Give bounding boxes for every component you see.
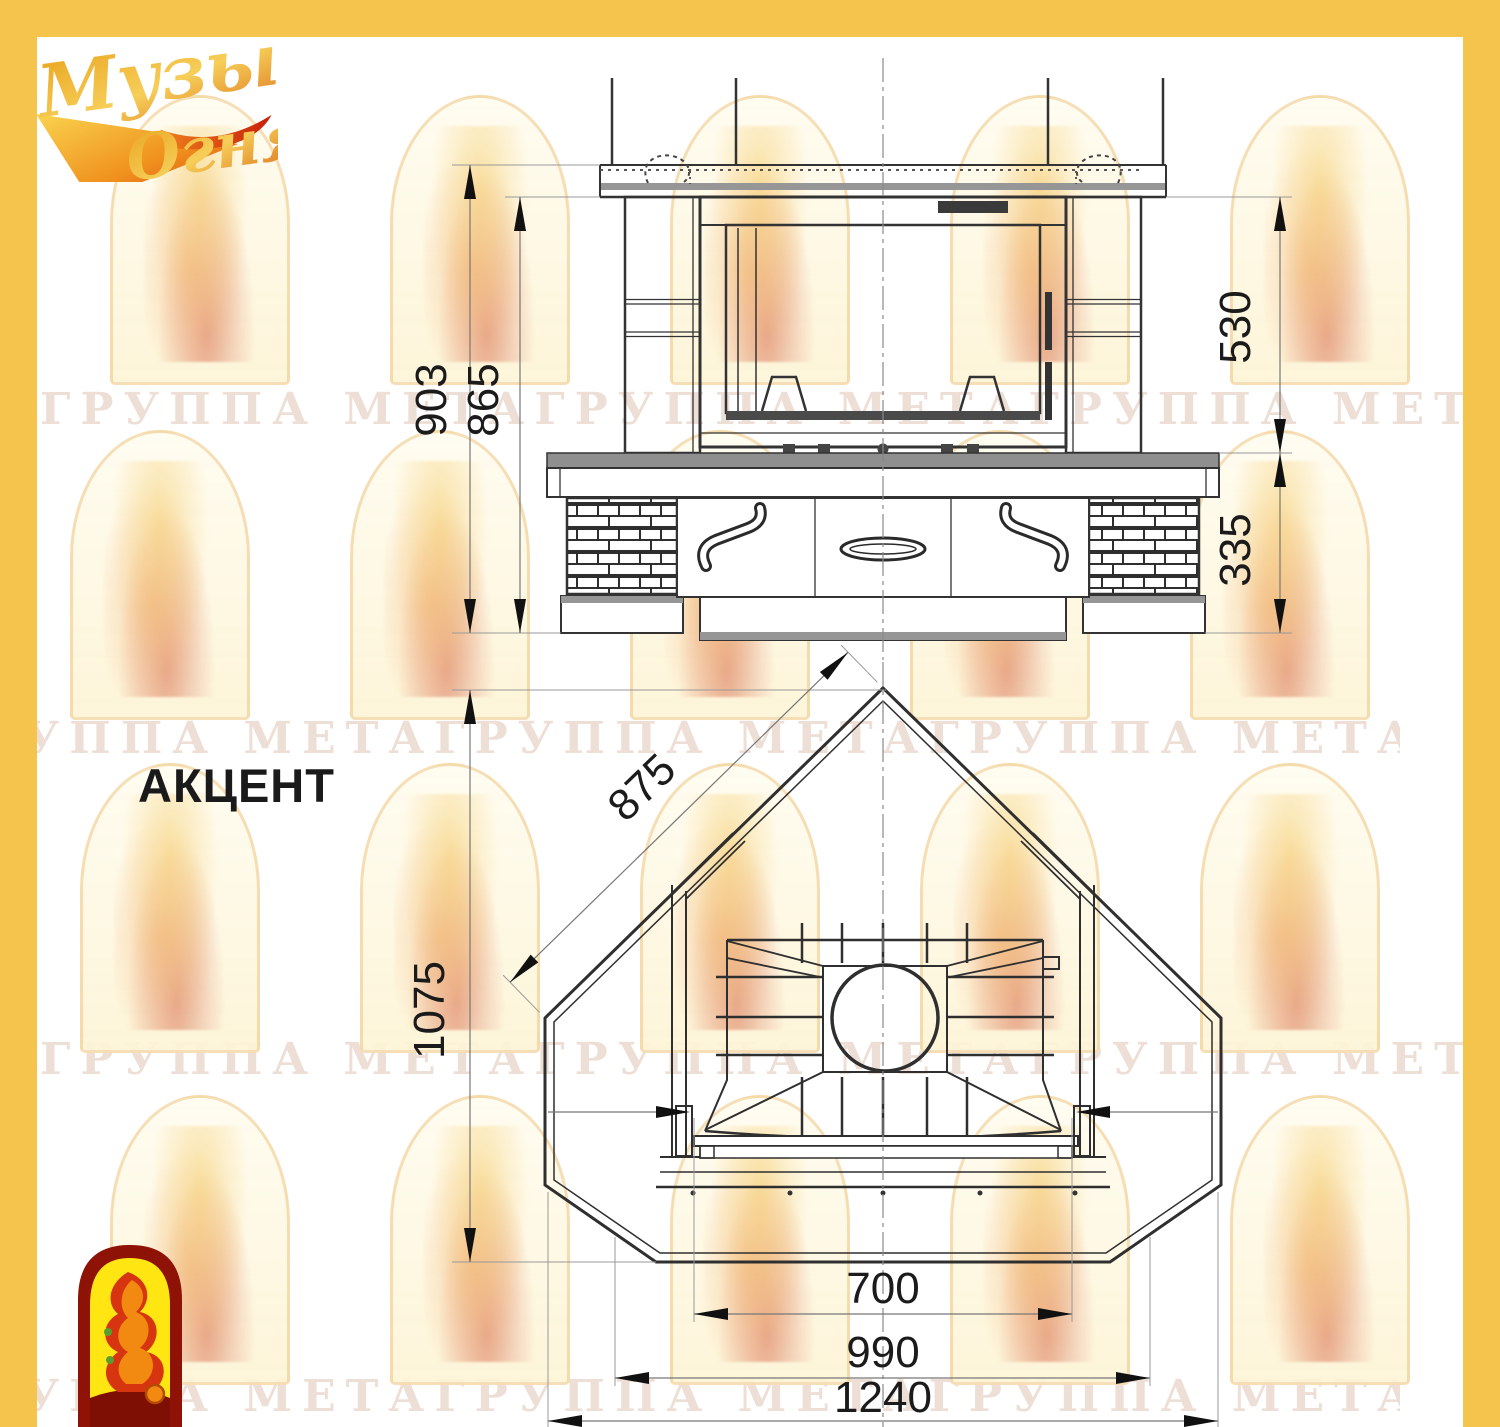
technical-drawing: 903 865 530 335 — [0, 0, 1500, 1427]
leaf-dot-icon — [104, 1328, 112, 1336]
front-view — [547, 58, 1219, 660]
meta-arch-logo — [70, 1236, 190, 1427]
brand-logo: Музыка Огня — [8, 2, 278, 182]
dim-903-label: 903 — [407, 363, 456, 436]
sun-dot-icon — [146, 1385, 164, 1403]
dim-530-label: 530 — [1211, 290, 1260, 363]
dim-335-label: 335 — [1211, 513, 1260, 586]
insert-brand-plate — [938, 201, 1008, 213]
leaf-dot-icon — [106, 1356, 114, 1364]
door-handle — [1045, 292, 1052, 350]
dim-865-label: 865 — [459, 363, 508, 436]
plan-view-dim-arrows — [464, 652, 1218, 1427]
door-handle — [1045, 362, 1052, 420]
dim-1075-label: 1075 — [405, 961, 454, 1059]
page: { "page": { "frame_yellow": "#f5c44d", "… — [0, 0, 1500, 1427]
dim-1240-label: 1240 — [834, 1373, 932, 1422]
model-name-label: АКЦЕНТ — [138, 758, 335, 813]
dim-700-label: 700 — [846, 1264, 919, 1313]
dim-990-label: 990 — [846, 1328, 919, 1377]
dim-875-label: 875 — [599, 744, 686, 830]
